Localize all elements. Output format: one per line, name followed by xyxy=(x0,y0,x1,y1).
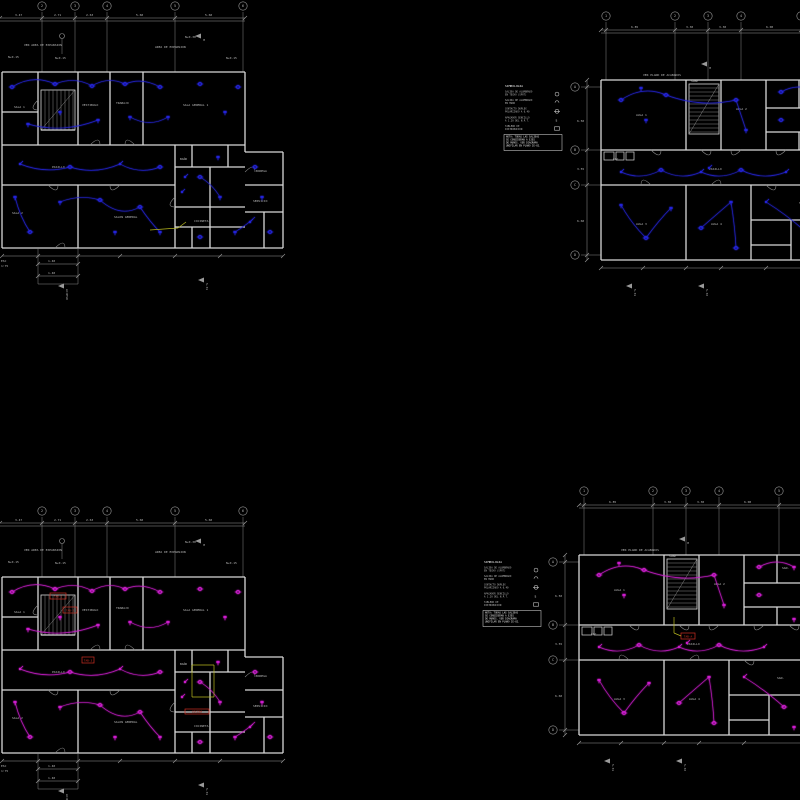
svg-text:S-01: S-01 xyxy=(205,788,209,795)
svg-text:2.63: 2.63 xyxy=(86,518,93,522)
svg-text:SAN.: SAN. xyxy=(782,566,789,570)
svg-text:N+0.15: N+0.15 xyxy=(226,561,237,565)
svg-text:POLARIZADO A 0.40: POLARIZADO A 0.40 xyxy=(484,587,509,590)
svg-text:COC.: COC. xyxy=(591,632,598,636)
svg-text:S-02: S-02 xyxy=(705,289,709,296)
svg-text:3.55: 3.55 xyxy=(555,642,562,646)
svg-text:6.00: 6.00 xyxy=(744,500,751,504)
svg-text:S-01: S-01 xyxy=(611,764,615,771)
svg-text:COCINA: COCINA xyxy=(192,710,202,714)
svg-text:SALA 1: SALA 1 xyxy=(14,610,25,614)
svg-text:3.47: 3.47 xyxy=(15,518,22,522)
svg-text:SALA GENERAL 1: SALA GENERAL 1 xyxy=(183,103,208,107)
svg-text:EN MURO: EN MURO xyxy=(505,102,516,105)
svg-text:UNIFILAR EN PLANO IE-02.: UNIFILAR EN PLANO IE-02. xyxy=(485,621,520,624)
svg-text:B: B xyxy=(202,544,206,546)
svg-text:SUBE: SUBE xyxy=(691,79,698,83)
svg-text:AREA DE EXPANSION: AREA DE EXPANSION xyxy=(155,550,186,554)
svg-text:BAÑO: BAÑO xyxy=(180,156,187,161)
svg-text:ACCESO: ACCESO xyxy=(65,794,69,800)
svg-text:S-01: S-01 xyxy=(205,283,209,290)
svg-text:BAÑO: BAÑO xyxy=(180,661,187,666)
svg-text:2.71: 2.71 xyxy=(54,518,61,522)
svg-text:1:75: 1:75 xyxy=(1,769,8,773)
svg-text:A: A xyxy=(574,85,576,89)
svg-text:2: 2 xyxy=(674,14,676,18)
svg-text:TAB-3: TAB-3 xyxy=(84,659,93,663)
svg-text:TRABAJO: TRABAJO xyxy=(116,606,129,610)
svg-text:VESTIBULO: VESTIBULO xyxy=(82,103,98,107)
svg-text:B: B xyxy=(686,542,690,544)
svg-text:A 1.20 DEL N.P.T.: A 1.20 DEL N.P.T. xyxy=(484,595,508,598)
svg-text:3.30: 3.30 xyxy=(686,25,693,29)
svg-text:1.40: 1.40 xyxy=(48,259,55,263)
svg-text:2.71: 2.71 xyxy=(54,13,61,17)
svg-text:2.63: 2.63 xyxy=(86,13,93,17)
svg-text:N+0.15: N+0.15 xyxy=(55,561,66,565)
svg-text:VER AREA DE EXPANSION: VER AREA DE EXPANSION xyxy=(24,43,62,47)
svg-text:3.30: 3.30 xyxy=(697,500,704,504)
svg-text:PASILLO: PASILLO xyxy=(687,642,700,646)
svg-text:VER PLANO DE ACABADOS: VER PLANO DE ACABADOS xyxy=(643,73,681,77)
svg-text:TRABAJO: TRABAJO xyxy=(116,101,129,105)
svg-text:ESC: ESC xyxy=(1,764,7,768)
floor-plan-bottom-right-lighting: 123456.853.303.306.00BVER PLANO DE ACABA… xyxy=(549,487,800,772)
svg-text:ESC: ESC xyxy=(1,259,7,263)
svg-text:TAB-1: TAB-1 xyxy=(54,595,63,599)
symbol-legend-bottom: SIMBOLOGIASALIDA DE ALUMBRADOEN TECHO (S… xyxy=(483,560,541,627)
svg-text:4: 4 xyxy=(106,4,108,8)
svg-text:N+0.15: N+0.15 xyxy=(226,56,237,60)
svg-text:B: B xyxy=(708,67,712,69)
svg-text:TAB-A: TAB-A xyxy=(684,635,693,639)
svg-text:D: D xyxy=(574,253,576,257)
floor-plan-top-left-power: 234563.472.712.635.605.60BVER AREA DE EX… xyxy=(0,2,285,300)
svg-text:5.60: 5.60 xyxy=(136,13,143,17)
floor-plan-top-right-power: 123456.853.303.306.00BVER PLANO DE ACABA… xyxy=(571,12,800,297)
svg-text:3.47: 3.47 xyxy=(15,13,22,17)
svg-text:6.60: 6.60 xyxy=(577,219,584,223)
svg-text:1.40: 1.40 xyxy=(48,776,55,780)
svg-text:SIMBOLOGIA: SIMBOLOGIA xyxy=(484,560,502,564)
svg-text:N+0.15: N+0.15 xyxy=(8,560,19,564)
svg-text:S-02: S-02 xyxy=(683,764,687,771)
svg-text:6: 6 xyxy=(242,4,244,8)
svg-text:D: D xyxy=(552,728,554,732)
svg-text:SALON GENERAL: SALON GENERAL xyxy=(114,215,138,219)
svg-text:6.85: 6.85 xyxy=(609,500,616,504)
floor-plan-top-left-power-symbols xyxy=(9,80,273,239)
symbol-legend-top: SIMBOLOGIASALIDA DE ALUMBRADOEN TECHO (S… xyxy=(504,84,562,151)
floor-plan-bottom-left-lighting: 234563.472.712.635.605.60BVER AREA DE EX… xyxy=(0,507,285,800)
svg-text:SERVICIO: SERVICIO xyxy=(253,199,268,203)
svg-text:BODEGA: BODEGA xyxy=(256,169,267,173)
cad-drawing: 234563.472.712.635.605.60BVER AREA DE EX… xyxy=(0,0,800,800)
svg-text:AULA 3: AULA 3 xyxy=(636,222,647,226)
svg-text:3: 3 xyxy=(74,509,76,513)
svg-text:AULA 3: AULA 3 xyxy=(614,697,625,701)
svg-text:4: 4 xyxy=(740,14,742,18)
svg-text:N+0.15: N+0.15 xyxy=(55,56,66,60)
svg-text:EN MURO: EN MURO xyxy=(484,578,495,581)
svg-text:N+0.15: N+0.15 xyxy=(8,55,19,59)
svg-text:VER PLANO DE ACABADOS: VER PLANO DE ACABADOS xyxy=(621,548,659,552)
svg-text:3: 3 xyxy=(685,489,687,493)
svg-text:B: B xyxy=(202,39,206,41)
svg-text:6.85: 6.85 xyxy=(631,25,638,29)
svg-text:2: 2 xyxy=(652,489,654,493)
svg-text:5.60: 5.60 xyxy=(205,518,212,522)
svg-text:AULA 4: AULA 4 xyxy=(711,222,722,226)
svg-text:BODEGA: BODEGA xyxy=(256,674,267,678)
svg-text:2: 2 xyxy=(41,4,43,8)
svg-text:5: 5 xyxy=(778,489,780,493)
svg-text:3.30: 3.30 xyxy=(664,500,671,504)
svg-text:AULA 2: AULA 2 xyxy=(736,107,747,111)
svg-text:B: B xyxy=(552,623,554,627)
svg-text:1.40: 1.40 xyxy=(48,271,55,275)
svg-text:3.55: 3.55 xyxy=(577,167,584,171)
svg-text:PASILLO: PASILLO xyxy=(709,167,722,171)
svg-text:SIMBOLOGIA: SIMBOLOGIA xyxy=(505,84,523,88)
svg-text:2: 2 xyxy=(41,509,43,513)
svg-text:B: B xyxy=(574,148,576,152)
svg-text:5.60: 5.60 xyxy=(136,518,143,522)
svg-text:COCINETA: COCINETA xyxy=(194,724,209,728)
svg-text:A: A xyxy=(552,560,554,564)
svg-text:3.30: 3.30 xyxy=(719,25,726,29)
svg-text:3: 3 xyxy=(74,4,76,8)
svg-text:3: 3 xyxy=(707,14,709,18)
svg-text:5.60: 5.60 xyxy=(205,13,212,17)
svg-text:6: 6 xyxy=(242,509,244,513)
svg-text:POLARIZADO A 0.40: POLARIZADO A 0.40 xyxy=(505,111,530,114)
svg-text:1: 1 xyxy=(583,489,585,493)
svg-text:4: 4 xyxy=(718,489,720,493)
svg-text:ACCESO: ACCESO xyxy=(65,289,69,300)
svg-text:N+0.30: N+0.30 xyxy=(185,35,196,39)
svg-text:4: 4 xyxy=(106,509,108,513)
svg-text:S: S xyxy=(556,118,558,122)
svg-text:UNIFILAR EN PLANO IE-02.: UNIFILAR EN PLANO IE-02. xyxy=(506,145,541,148)
svg-text:S-01: S-01 xyxy=(633,289,637,296)
svg-text:DISTRIBUCION: DISTRIBUCION xyxy=(505,128,523,131)
autocad-sheet: 234563.472.712.635.605.60BVER AREA DE EX… xyxy=(0,0,800,800)
svg-text:COC.: COC. xyxy=(613,157,620,161)
svg-text:SAN.: SAN. xyxy=(777,676,784,680)
svg-text:AREA DE EXPANSION: AREA DE EXPANSION xyxy=(155,45,186,49)
svg-text:SERVICIO: SERVICIO xyxy=(253,704,268,708)
svg-text:SUBE: SUBE xyxy=(669,554,676,558)
svg-text:1.40: 1.40 xyxy=(48,764,55,768)
svg-text:VER AREA DE EXPANSION: VER AREA DE EXPANSION xyxy=(24,548,62,552)
svg-text:COCINETA: COCINETA xyxy=(194,219,209,223)
svg-text:SALA GENERAL 1: SALA GENERAL 1 xyxy=(183,608,208,612)
svg-text:N+0.30: N+0.30 xyxy=(185,540,196,544)
svg-text:1:75: 1:75 xyxy=(1,264,8,268)
svg-text:S: S xyxy=(535,594,537,598)
svg-text:SALA 2: SALA 2 xyxy=(12,716,23,720)
svg-text:AULA 4: AULA 4 xyxy=(689,697,700,701)
svg-text:TAB-2: TAB-2 xyxy=(66,609,75,613)
svg-text:VESTIBULO: VESTIBULO xyxy=(82,608,98,612)
svg-text:6.00: 6.00 xyxy=(766,25,773,29)
svg-text:EN TECHO (SPOT): EN TECHO (SPOT) xyxy=(505,94,527,97)
svg-text:SALON GENERAL: SALON GENERAL xyxy=(114,720,138,724)
svg-text:6.50: 6.50 xyxy=(577,119,584,123)
svg-text:AULA 1: AULA 1 xyxy=(614,588,625,592)
svg-text:A 1.20 DEL N.P.T.: A 1.20 DEL N.P.T. xyxy=(505,119,529,122)
svg-text:5: 5 xyxy=(174,509,176,513)
svg-text:SALA 1: SALA 1 xyxy=(14,105,25,109)
svg-text:SALA 2: SALA 2 xyxy=(12,211,23,215)
svg-text:C: C xyxy=(574,183,576,187)
svg-text:EN TECHO (SPOT): EN TECHO (SPOT) xyxy=(484,570,506,573)
svg-text:6.60: 6.60 xyxy=(555,694,562,698)
svg-text:5: 5 xyxy=(174,4,176,8)
svg-text:C: C xyxy=(552,658,554,662)
svg-text:AULA 2: AULA 2 xyxy=(714,582,725,586)
floor-plan-bottom-left-lighting-symbols xyxy=(9,585,273,744)
svg-text:1: 1 xyxy=(605,14,607,18)
svg-text:AULA 1: AULA 1 xyxy=(636,113,647,117)
svg-text:DISTRIBUCION: DISTRIBUCION xyxy=(484,604,502,607)
svg-text:6.50: 6.50 xyxy=(555,594,562,598)
